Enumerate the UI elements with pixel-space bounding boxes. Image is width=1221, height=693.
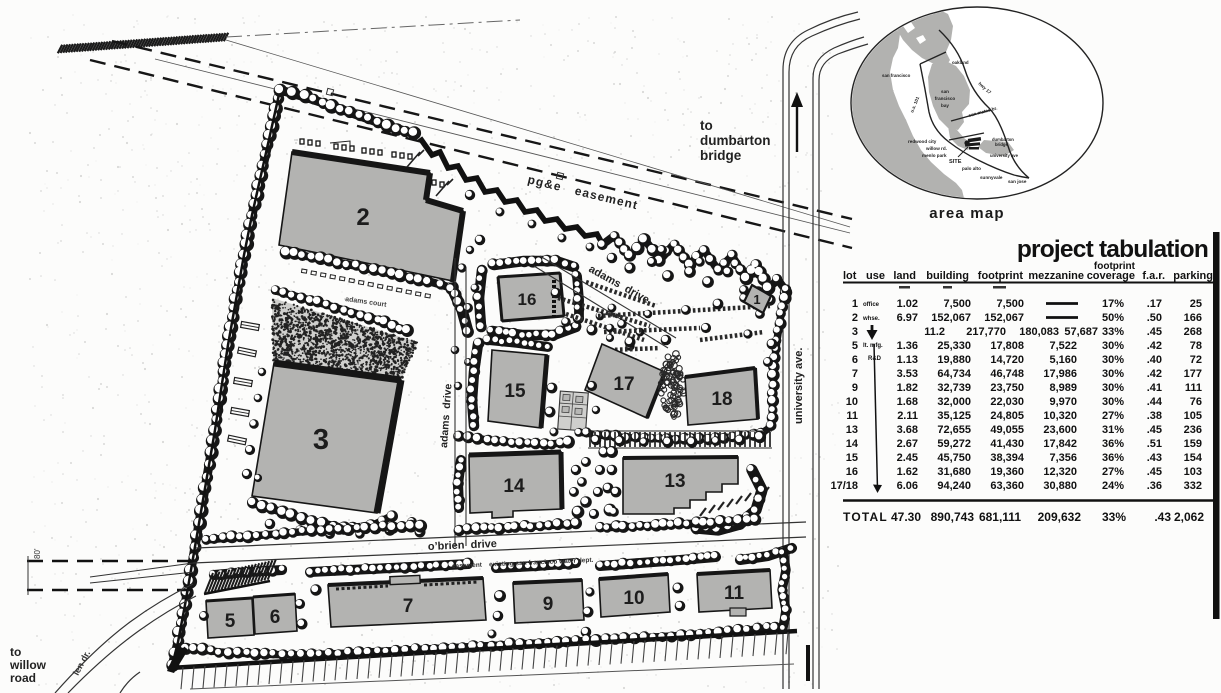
svg-text:17,842: 17,842	[1043, 438, 1077, 450]
svg-text:2: 2	[356, 204, 369, 231]
svg-text:1.02: 1.02	[897, 298, 918, 310]
svg-text:33%: 33%	[1102, 510, 1126, 524]
svg-text:lot: lot	[843, 270, 857, 282]
svg-text:f.a.r.: f.a.r.	[1142, 270, 1165, 282]
svg-text:23,750: 23,750	[990, 382, 1024, 394]
svg-text:7: 7	[852, 368, 858, 380]
svg-text:area map: area map	[929, 205, 1004, 222]
svg-text:.43: .43	[1147, 452, 1162, 464]
svg-text:12,320: 12,320	[1043, 466, 1077, 478]
svg-text:64,734: 64,734	[937, 368, 972, 380]
svg-text:5,160: 5,160	[1049, 354, 1077, 366]
svg-text:59,272: 59,272	[937, 438, 971, 450]
svg-text:SITE: SITE	[949, 159, 962, 165]
svg-text:3.53: 3.53	[897, 368, 918, 380]
svg-text:bridge: bridge	[995, 142, 1008, 147]
svg-text:30%: 30%	[1102, 382, 1124, 394]
svg-text:.45: .45	[1147, 326, 1162, 338]
svg-text:willow: willow	[9, 658, 47, 672]
svg-text:31%: 31%	[1102, 424, 1124, 436]
svg-text:6.06: 6.06	[897, 480, 918, 492]
svg-text:3: 3	[313, 424, 329, 456]
svg-text:27%: 27%	[1102, 466, 1124, 478]
svg-text:63,360: 63,360	[990, 480, 1024, 492]
svg-text:8,989: 8,989	[1049, 382, 1077, 394]
svg-text:.40: .40	[1147, 354, 1162, 366]
svg-text:35,125: 35,125	[937, 410, 971, 422]
svg-text:15: 15	[504, 381, 526, 402]
svg-text:76: 76	[1190, 396, 1202, 408]
svg-text:land: land	[893, 270, 916, 282]
svg-text:57,687: 57,687	[1064, 326, 1098, 338]
svg-text:1.68: 1.68	[897, 396, 918, 408]
svg-text:47.30: 47.30	[891, 510, 921, 524]
svg-text:72: 72	[1190, 354, 1202, 366]
svg-text:9: 9	[543, 594, 554, 615]
svg-text:268: 268	[1184, 326, 1202, 338]
svg-text:152,067: 152,067	[931, 312, 971, 324]
svg-text:25: 25	[1190, 298, 1202, 310]
svg-text:.42: .42	[1147, 340, 1162, 352]
svg-text:13: 13	[664, 471, 685, 492]
svg-text:mezzanine: mezzanine	[1028, 270, 1084, 282]
svg-text:lt. mfg.: lt. mfg.	[863, 343, 883, 349]
svg-text:1: 1	[753, 292, 760, 307]
svg-text:217,770: 217,770	[966, 326, 1006, 338]
svg-text:16: 16	[846, 466, 858, 478]
svg-text:14: 14	[503, 476, 525, 497]
svg-text:TOTAL: TOTAL	[843, 510, 888, 524]
svg-text:2.11: 2.11	[897, 410, 918, 422]
svg-text:bay: bay	[941, 103, 949, 108]
svg-text:22,030: 22,030	[990, 396, 1024, 408]
svg-text:parking: parking	[1173, 270, 1213, 282]
svg-text:to: to	[700, 118, 713, 133]
svg-text:whse.: whse.	[862, 316, 880, 322]
svg-text:san jose: san jose	[1008, 179, 1027, 184]
svg-text:use: use	[866, 270, 885, 282]
svg-text:.43: .43	[1154, 510, 1171, 524]
svg-text:24,805: 24,805	[990, 410, 1024, 422]
svg-text:1: 1	[852, 298, 858, 310]
svg-text:.36: .36	[1147, 480, 1162, 492]
svg-text:redwood city: redwood city	[908, 139, 937, 144]
svg-text:7,500: 7,500	[996, 298, 1024, 310]
svg-text:.50: .50	[1147, 312, 1162, 324]
svg-text:10: 10	[623, 588, 644, 609]
svg-text:building: building	[926, 270, 969, 282]
svg-text:.42: .42	[1147, 368, 1162, 380]
svg-text:1.62: 1.62	[897, 466, 918, 478]
svg-text:890,743: 890,743	[931, 510, 975, 524]
svg-text:30,880: 30,880	[1043, 480, 1077, 492]
svg-text:.51: .51	[1147, 438, 1162, 450]
svg-text:san: san	[941, 89, 949, 94]
svg-text:25,330: 25,330	[937, 340, 971, 352]
svg-text:23,600: 23,600	[1043, 424, 1077, 436]
svg-text:1.82: 1.82	[897, 382, 918, 394]
svg-text:road: road	[10, 671, 36, 685]
svg-text:13: 13	[846, 424, 858, 436]
svg-text:78: 78	[1190, 340, 1202, 352]
svg-text:332: 332	[1184, 480, 1202, 492]
svg-text:.45: .45	[1147, 424, 1162, 436]
svg-text:36%: 36%	[1102, 438, 1124, 450]
svg-text:46,748: 46,748	[990, 368, 1024, 380]
svg-text:33%: 33%	[1102, 326, 1124, 338]
svg-text:9,970: 9,970	[1049, 396, 1077, 408]
svg-text:.44: .44	[1147, 396, 1163, 408]
svg-text:17: 17	[613, 374, 634, 395]
svg-text:footprint: footprint	[978, 270, 1024, 282]
svg-text:166: 166	[1184, 312, 1202, 324]
svg-text:17,808: 17,808	[990, 340, 1024, 352]
svg-text:72,655: 72,655	[937, 424, 971, 436]
svg-text:14,720: 14,720	[990, 354, 1024, 366]
svg-text:1.13: 1.13	[897, 354, 918, 366]
svg-text:coverage: coverage	[1087, 270, 1135, 282]
svg-text:236: 236	[1184, 424, 1202, 436]
svg-text:to: to	[10, 645, 21, 659]
svg-text:17%: 17%	[1102, 298, 1124, 310]
svg-text:francisco: francisco	[935, 96, 956, 101]
svg-text:14: 14	[846, 438, 859, 450]
svg-text:sunnyvale: sunnyvale	[980, 175, 1003, 180]
svg-text:45,750: 45,750	[937, 452, 971, 464]
svg-text:.41: .41	[1147, 382, 1162, 394]
svg-text:7,500: 7,500	[943, 298, 971, 310]
svg-text:10,320: 10,320	[1043, 410, 1077, 422]
svg-text:103: 103	[1184, 466, 1202, 478]
svg-text:49,055: 49,055	[990, 424, 1024, 436]
svg-text:17,986: 17,986	[1043, 368, 1077, 380]
svg-text:2: 2	[852, 312, 858, 324]
svg-text:7,522: 7,522	[1049, 340, 1077, 352]
svg-text:209,632: 209,632	[1038, 510, 1082, 524]
svg-text:university ave: university ave	[990, 153, 1019, 158]
svg-text:3.68: 3.68	[897, 424, 918, 436]
svg-text:11: 11	[846, 410, 858, 422]
svg-text:154: 154	[1184, 452, 1203, 464]
svg-text:19,360: 19,360	[990, 466, 1024, 478]
svg-text:30%: 30%	[1102, 354, 1124, 366]
svg-text:dumbarton: dumbarton	[700, 133, 771, 148]
svg-text:2.67: 2.67	[897, 438, 918, 450]
svg-text:30%: 30%	[1102, 340, 1124, 352]
svg-text:32,739: 32,739	[937, 382, 971, 394]
svg-text:41,430: 41,430	[990, 438, 1024, 450]
svg-text:38,394: 38,394	[990, 452, 1025, 464]
svg-text:152,067: 152,067	[984, 312, 1024, 324]
svg-text:159: 159	[1184, 438, 1202, 450]
svg-text:10: 10	[846, 396, 858, 408]
svg-text:1.36: 1.36	[897, 340, 918, 352]
svg-text:2,062: 2,062	[1174, 510, 1204, 524]
svg-text:oakland: oakland	[952, 60, 969, 65]
svg-text:111: 111	[1185, 382, 1202, 394]
svg-text:50%: 50%	[1102, 312, 1124, 324]
svg-text:681,111: 681,111	[979, 510, 1021, 524]
svg-text:bridge: bridge	[700, 148, 742, 163]
svg-text:17/18: 17/18	[830, 480, 858, 492]
svg-text:project tabulation: project tabulation	[1017, 236, 1208, 263]
svg-text:5: 5	[225, 611, 236, 632]
svg-text:30%: 30%	[1102, 396, 1124, 408]
svg-text:105: 105	[1184, 410, 1202, 422]
svg-text:30%: 30%	[1102, 368, 1124, 380]
svg-text:177: 177	[1184, 368, 1202, 380]
svg-text:6.97: 6.97	[897, 312, 918, 324]
svg-text:office: office	[863, 302, 880, 308]
svg-text:94,240: 94,240	[937, 480, 971, 492]
svg-text:11: 11	[724, 583, 745, 604]
svg-text:university ave.: university ave.	[793, 348, 805, 424]
svg-text:3: 3	[852, 326, 858, 338]
svg-text:7: 7	[403, 596, 414, 617]
svg-text:.45: .45	[1147, 466, 1162, 478]
svg-text:80’: 80’	[33, 548, 42, 559]
svg-text:32,000: 32,000	[937, 396, 971, 408]
svg-text:15: 15	[846, 452, 858, 464]
svg-text:27%: 27%	[1102, 410, 1124, 422]
svg-text:9: 9	[852, 382, 858, 394]
svg-text:18: 18	[711, 389, 732, 410]
svg-text:palo alto: palo alto	[962, 166, 981, 171]
svg-text:6: 6	[852, 354, 858, 366]
svg-text:5: 5	[852, 340, 858, 352]
svg-text:16: 16	[518, 290, 537, 309]
svg-text:180,083: 180,083	[1019, 326, 1059, 338]
svg-text:willow rd.: willow rd.	[925, 146, 947, 151]
svg-text:7,356: 7,356	[1049, 452, 1077, 464]
svg-text:.17: .17	[1147, 298, 1162, 310]
svg-text:11.2: 11.2	[924, 326, 945, 338]
svg-text:.38: .38	[1147, 410, 1162, 422]
svg-text:36%: 36%	[1102, 452, 1124, 464]
svg-text:24%: 24%	[1102, 480, 1124, 492]
svg-text:2.45: 2.45	[897, 452, 918, 464]
svg-text:19,880: 19,880	[937, 354, 971, 366]
svg-text:san francisco: san francisco	[882, 73, 911, 78]
svg-text:menlo park: menlo park	[922, 153, 947, 158]
svg-text:31,680: 31,680	[937, 466, 971, 478]
svg-text:6: 6	[270, 607, 281, 628]
